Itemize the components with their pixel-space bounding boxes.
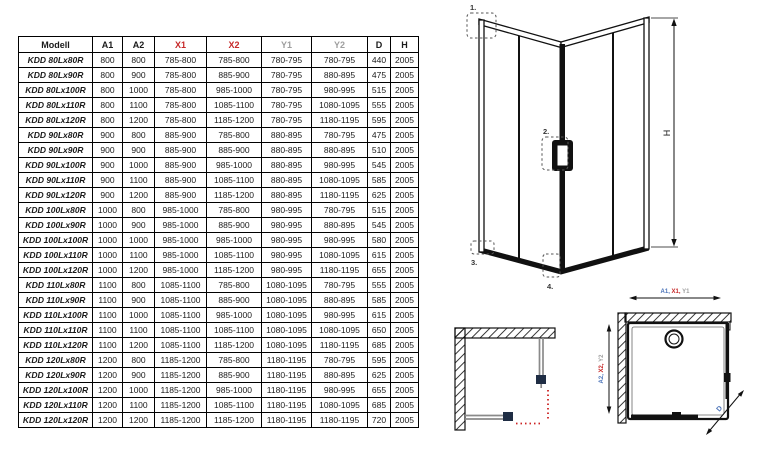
value-cell: 800 <box>123 278 155 293</box>
value-cell: 885-900 <box>155 188 207 203</box>
value-cell: 800 <box>93 113 123 128</box>
value-cell: 1000 <box>123 83 155 98</box>
value-cell: 720 <box>368 413 391 428</box>
model-cell: KDD 120Lx120R <box>19 413 93 428</box>
value-cell: 1200 <box>123 188 155 203</box>
value-cell: 885-900 <box>155 173 207 188</box>
model-cell: KDD 120Lx80R <box>19 353 93 368</box>
value-cell: 780-795 <box>262 113 312 128</box>
value-cell: 900 <box>123 68 155 83</box>
value-cell: 1000 <box>123 158 155 173</box>
value-cell: 1080-1095 <box>262 323 312 338</box>
table-row: KDD 90Lx110R9001100885-9001085-1100880-8… <box>19 173 419 188</box>
value-cell: 800 <box>123 53 155 68</box>
value-cell: 1200 <box>93 398 123 413</box>
value-cell: 780-795 <box>312 128 368 143</box>
model-cell: KDD 90Lx90R <box>19 143 93 158</box>
value-cell: 1085-1100 <box>155 338 207 353</box>
value-cell: 980-995 <box>262 218 312 233</box>
table-row: KDD 100Lx80R1000800985-1000785-800980-99… <box>19 203 419 218</box>
handle-bottom-door <box>503 412 513 421</box>
value-cell: 1200 <box>93 413 123 428</box>
value-cell: 1100 <box>123 173 155 188</box>
value-cell: 780-795 <box>262 53 312 68</box>
value-cell: 880-895 <box>262 188 312 203</box>
value-cell: 1080-1095 <box>312 248 368 263</box>
tray-plan-diagram: A1, X1, Y1 A2, X2, Y2 D <box>598 283 764 451</box>
value-cell: 900 <box>123 293 155 308</box>
value-cell: 980-995 <box>312 233 368 248</box>
value-cell: 2005 <box>391 383 419 398</box>
value-cell: 800 <box>93 53 123 68</box>
model-cell: KDD 110Lx110R <box>19 323 93 338</box>
value-cell: 780-795 <box>262 98 312 113</box>
value-cell: 1085-1100 <box>207 98 262 113</box>
value-cell: 1185-1200 <box>207 413 262 428</box>
value-cell: 685 <box>368 398 391 413</box>
value-cell: 880-895 <box>262 143 312 158</box>
value-cell: 800 <box>93 98 123 113</box>
value-cell: 1100 <box>123 98 155 113</box>
value-cell: 2005 <box>391 293 419 308</box>
value-cell: 985-1000 <box>207 308 262 323</box>
value-cell: 780-795 <box>262 83 312 98</box>
wall-top <box>625 313 731 322</box>
column-header-a2: A2 <box>123 37 155 53</box>
model-cell: KDD 120Lx90R <box>19 368 93 383</box>
value-cell: 1080-1095 <box>312 98 368 113</box>
value-cell: 985-1000 <box>155 218 207 233</box>
value-cell: 1080-1095 <box>262 278 312 293</box>
table-row: KDD 100Lx90R1000900985-1000885-900980-99… <box>19 218 419 233</box>
value-cell: 650 <box>368 323 391 338</box>
value-cell: 980-995 <box>262 203 312 218</box>
value-cell: 1085-1100 <box>207 173 262 188</box>
value-cell: 1200 <box>93 353 123 368</box>
value-cell: 625 <box>368 188 391 203</box>
value-cell: 800 <box>123 128 155 143</box>
table-row: KDD 120Lx100R120010001185-1200985-100011… <box>19 383 419 398</box>
value-cell: 985-1000 <box>155 233 207 248</box>
value-cell: 880-895 <box>312 143 368 158</box>
value-cell: 1185-1200 <box>155 368 207 383</box>
value-cell: 2005 <box>391 263 419 278</box>
table-row: KDD 110Lx80R11008001085-1100785-8001080-… <box>19 278 419 293</box>
value-cell: 780-795 <box>312 53 368 68</box>
value-cell: 880-895 <box>312 68 368 83</box>
value-cell: 880-895 <box>312 368 368 383</box>
value-cell: 585 <box>368 293 391 308</box>
value-cell: 985-1000 <box>207 83 262 98</box>
bottom-door-handle <box>672 412 681 420</box>
value-cell: 785-800 <box>155 113 207 128</box>
callout-3-label: 3. <box>471 258 477 267</box>
bottom-door-rail <box>631 415 698 419</box>
model-cell: KDD 110Lx80R <box>19 278 93 293</box>
table-row: KDD 120Lx80R12008001185-1200785-8001180-… <box>19 353 419 368</box>
door-opening-plan-diagram <box>440 318 575 451</box>
value-cell: 1085-1100 <box>155 323 207 338</box>
column-header-y2: Y2 <box>312 37 368 53</box>
value-cell: 785-800 <box>155 83 207 98</box>
value-cell: 1100 <box>123 323 155 338</box>
value-cell: 1180-1195 <box>262 353 312 368</box>
spec-table-body: KDD 80Lx80R800800785-800785-800780-79578… <box>19 53 419 428</box>
value-cell: 615 <box>368 308 391 323</box>
table-row: KDD 110Lx90R11009001085-1100885-9001080-… <box>19 293 419 308</box>
value-cell: 1080-1095 <box>262 338 312 353</box>
value-cell: 980-995 <box>312 383 368 398</box>
value-cell: 2005 <box>391 323 419 338</box>
model-cell: KDD 80Lx120R <box>19 113 93 128</box>
value-cell: 880-895 <box>262 158 312 173</box>
value-cell: 2005 <box>391 278 419 293</box>
value-cell: 885-900 <box>155 128 207 143</box>
value-cell: 885-900 <box>207 143 262 158</box>
value-cell: 985-1000 <box>155 203 207 218</box>
value-cell: 515 <box>368 203 391 218</box>
value-cell: 1100 <box>93 338 123 353</box>
value-cell: 800 <box>93 68 123 83</box>
value-cell: 980-995 <box>312 158 368 173</box>
table-row: KDD 90Lx100R9001000885-900985-1000880-89… <box>19 158 419 173</box>
value-cell: 1185-1200 <box>155 383 207 398</box>
value-cell: 800 <box>123 203 155 218</box>
value-cell: 885-900 <box>207 368 262 383</box>
value-cell: 1080-1095 <box>262 293 312 308</box>
value-cell: 785-800 <box>155 68 207 83</box>
table-row: KDD 80Lx100R8001000785-800985-1000780-79… <box>19 83 419 98</box>
value-cell: 985-1000 <box>207 233 262 248</box>
value-cell: 2005 <box>391 188 419 203</box>
value-cell: 900 <box>93 128 123 143</box>
value-cell: 1080-1095 <box>312 173 368 188</box>
model-cell: KDD 80Lx80R <box>19 53 93 68</box>
value-cell: 1180-1195 <box>262 398 312 413</box>
table-row: KDD 90Lx120R9001200885-9001185-1200880-8… <box>19 188 419 203</box>
value-cell: 1185-1200 <box>207 263 262 278</box>
value-cell: 440 <box>368 53 391 68</box>
value-cell: 1000 <box>93 263 123 278</box>
value-cell: 2005 <box>391 218 419 233</box>
value-cell: 1100 <box>123 248 155 263</box>
value-cell: 625 <box>368 368 391 383</box>
table-row: KDD 120Lx110R120011001185-12001085-11001… <box>19 398 419 413</box>
model-cell: KDD 80Lx110R <box>19 98 93 113</box>
spec-table: ModellA1A2X1X2Y1Y2DH KDD 80Lx80R80080078… <box>18 36 419 428</box>
value-cell: 785-800 <box>207 203 262 218</box>
table-row: KDD 80Lx80R800800785-800785-800780-79578… <box>19 53 419 68</box>
value-cell: 1185-1200 <box>207 113 262 128</box>
value-cell: 785-800 <box>207 278 262 293</box>
value-cell: 1000 <box>123 233 155 248</box>
value-cell: 900 <box>123 218 155 233</box>
value-cell: 580 <box>368 233 391 248</box>
value-cell: 980-995 <box>312 83 368 98</box>
value-cell: 885-900 <box>207 68 262 83</box>
value-cell: 1085-1100 <box>155 308 207 323</box>
value-cell: 1200 <box>123 263 155 278</box>
value-cell: 1100 <box>93 323 123 338</box>
iso-shower-diagram: H 1. 2. 3. 4. <box>440 0 764 320</box>
value-cell: 510 <box>368 143 391 158</box>
model-cell: KDD 80Lx90R <box>19 68 93 83</box>
value-cell: 2005 <box>391 98 419 113</box>
value-cell: 2005 <box>391 143 419 158</box>
value-cell: 880-895 <box>262 173 312 188</box>
value-cell: 900 <box>93 143 123 158</box>
value-cell: 1000 <box>123 383 155 398</box>
value-cell: 515 <box>368 83 391 98</box>
value-cell: 780-795 <box>312 353 368 368</box>
value-cell: 1085-1100 <box>207 323 262 338</box>
value-cell: 1185-1200 <box>155 398 207 413</box>
value-cell: 555 <box>368 278 391 293</box>
model-cell: KDD 120Lx110R <box>19 398 93 413</box>
value-cell: 785-800 <box>207 53 262 68</box>
value-cell: 1200 <box>123 413 155 428</box>
value-cell: 885-900 <box>207 218 262 233</box>
value-cell: 800 <box>93 83 123 98</box>
value-cell: 900 <box>93 188 123 203</box>
value-cell: 1180-1195 <box>312 413 368 428</box>
value-cell: 1100 <box>93 293 123 308</box>
value-cell: 615 <box>368 248 391 263</box>
value-cell: 785-800 <box>207 353 262 368</box>
value-cell: 2005 <box>391 203 419 218</box>
table-row: KDD 90Lx90R900900885-900885-900880-89588… <box>19 143 419 158</box>
value-cell: 1085-1100 <box>207 398 262 413</box>
value-cell: 880-895 <box>312 218 368 233</box>
value-cell: 2005 <box>391 128 419 143</box>
value-cell: 900 <box>93 158 123 173</box>
top-rail-right <box>561 17 649 48</box>
table-row: KDD 80Lx90R800900785-800885-900780-79588… <box>19 68 419 83</box>
value-cell: 1085-1100 <box>155 278 207 293</box>
right-post <box>644 18 649 249</box>
horizontal-dimension-label: A1, X1, Y1 <box>661 289 691 295</box>
value-cell: 1185-1200 <box>207 188 262 203</box>
value-cell: 985-1000 <box>207 383 262 398</box>
value-cell: 885-900 <box>207 293 262 308</box>
value-cell: 1180-1195 <box>312 338 368 353</box>
value-cell: 1185-1200 <box>155 413 207 428</box>
model-cell: KDD 90Lx80R <box>19 128 93 143</box>
value-cell: 475 <box>368 128 391 143</box>
value-cell: 555 <box>368 98 391 113</box>
model-cell: KDD 90Lx100R <box>19 158 93 173</box>
value-cell: 980-995 <box>262 233 312 248</box>
table-row: KDD 120Lx120R120012001185-12001185-12001… <box>19 413 419 428</box>
model-cell: KDD 110Lx100R <box>19 308 93 323</box>
value-cell: 980-995 <box>262 248 312 263</box>
value-cell: 985-1000 <box>155 248 207 263</box>
table-row: KDD 120Lx90R12009001185-1200885-9001180-… <box>19 368 419 383</box>
model-cell: KDD 110Lx90R <box>19 293 93 308</box>
value-cell: 2005 <box>391 53 419 68</box>
value-cell: 1180-1195 <box>262 368 312 383</box>
value-cell: 885-900 <box>155 158 207 173</box>
value-cell: 780-795 <box>312 203 368 218</box>
model-cell: KDD 100Lx90R <box>19 218 93 233</box>
value-cell: 900 <box>123 143 155 158</box>
callout-4-label: 4. <box>547 282 553 291</box>
callout-1-label: 1. <box>470 3 476 12</box>
value-cell: 1200 <box>123 338 155 353</box>
table-row: KDD 80Lx120R8001200785-8001185-1200780-7… <box>19 113 419 128</box>
value-cell: 585 <box>368 173 391 188</box>
table-row: KDD 110Lx100R110010001085-1100985-100010… <box>19 308 419 323</box>
value-cell: 1100 <box>93 308 123 323</box>
column-header-modell: Modell <box>19 37 93 53</box>
value-cell: 1200 <box>93 368 123 383</box>
value-cell: 785-800 <box>155 98 207 113</box>
table-row: KDD 90Lx80R900800885-900785-800880-89578… <box>19 128 419 143</box>
value-cell: 1000 <box>93 203 123 218</box>
right-door-handle <box>724 373 731 382</box>
value-cell: 475 <box>368 68 391 83</box>
model-cell: KDD 100Lx110R <box>19 248 93 263</box>
value-cell: 1185-1200 <box>207 338 262 353</box>
value-cell: 2005 <box>391 248 419 263</box>
table-row: KDD 110Lx120R110012001085-11001185-12001… <box>19 338 419 353</box>
value-cell: 1080-1095 <box>262 308 312 323</box>
value-cell: 985-1000 <box>155 263 207 278</box>
value-cell: 2005 <box>391 173 419 188</box>
value-cell: 780-795 <box>312 278 368 293</box>
value-cell: 685 <box>368 338 391 353</box>
wall-top <box>455 328 555 338</box>
table-row: KDD 80Lx110R8001100785-8001085-1100780-7… <box>19 98 419 113</box>
value-cell: 1180-1195 <box>312 188 368 203</box>
callout-2-label: 2. <box>543 127 549 136</box>
model-cell: KDD 120Lx100R <box>19 383 93 398</box>
wall-left <box>618 313 626 423</box>
value-cell: 2005 <box>391 158 419 173</box>
value-cell: 2005 <box>391 398 419 413</box>
table-row: KDD 100Lx110R10001100985-10001085-110098… <box>19 248 419 263</box>
value-cell: 2005 <box>391 353 419 368</box>
vertical-dimension-label: A2, X2, Y2 <box>599 354 605 384</box>
value-cell: 1000 <box>93 218 123 233</box>
bottom-rail-right <box>561 245 649 275</box>
left-post <box>479 20 484 252</box>
value-cell: 900 <box>93 173 123 188</box>
value-cell: 785-800 <box>155 53 207 68</box>
value-cell: 1200 <box>123 113 155 128</box>
model-cell: KDD 110Lx120R <box>19 338 93 353</box>
value-cell: 2005 <box>391 113 419 128</box>
value-cell: 980-995 <box>262 263 312 278</box>
value-cell: 1080-1095 <box>312 398 368 413</box>
handle-right-door <box>536 375 546 384</box>
value-cell: 785-800 <box>207 128 262 143</box>
value-cell: 900 <box>123 368 155 383</box>
column-header-y1: Y1 <box>262 37 312 53</box>
column-header-d: D <box>368 37 391 53</box>
value-cell: 1200 <box>93 383 123 398</box>
value-cell: 1180-1195 <box>262 383 312 398</box>
value-cell: 655 <box>368 383 391 398</box>
height-dimension-label: H <box>662 130 672 137</box>
value-cell: 1000 <box>93 248 123 263</box>
value-cell: 1100 <box>123 398 155 413</box>
value-cell: 880-895 <box>312 293 368 308</box>
value-cell: 595 <box>368 353 391 368</box>
value-cell: 985-1000 <box>207 158 262 173</box>
value-cell: 1085-1100 <box>155 293 207 308</box>
value-cell: 1185-1200 <box>155 353 207 368</box>
value-cell: 885-900 <box>155 143 207 158</box>
model-cell: KDD 100Lx100R <box>19 233 93 248</box>
value-cell: 2005 <box>391 413 419 428</box>
column-header-x2: X2 <box>207 37 262 53</box>
value-cell: 1000 <box>123 308 155 323</box>
value-cell: 800 <box>123 353 155 368</box>
column-header-x1: X1 <box>155 37 207 53</box>
right-door-rail <box>726 323 730 399</box>
model-cell: KDD 100Lx80R <box>19 203 93 218</box>
value-cell: 2005 <box>391 83 419 98</box>
value-cell: 545 <box>368 158 391 173</box>
model-cell: KDD 90Lx110R <box>19 173 93 188</box>
value-cell: 1000 <box>93 233 123 248</box>
table-row: KDD 100Lx120R10001200985-10001185-120098… <box>19 263 419 278</box>
value-cell: 595 <box>368 113 391 128</box>
value-cell: 2005 <box>391 68 419 83</box>
drain-circle <box>666 331 683 348</box>
value-cell: 655 <box>368 263 391 278</box>
value-cell: 2005 <box>391 233 419 248</box>
column-header-h: H <box>391 37 419 53</box>
model-cell: KDD 80Lx100R <box>19 83 93 98</box>
value-cell: 1100 <box>93 278 123 293</box>
model-cell: KDD 90Lx120R <box>19 188 93 203</box>
wall-left <box>455 328 465 430</box>
value-cell: 2005 <box>391 368 419 383</box>
value-cell: 2005 <box>391 308 419 323</box>
value-cell: 780-795 <box>262 68 312 83</box>
value-cell: 1180-1195 <box>312 113 368 128</box>
value-cell: 2005 <box>391 338 419 353</box>
table-row: KDD 100Lx100R10001000985-1000985-1000980… <box>19 233 419 248</box>
value-cell: 1085-1100 <box>207 248 262 263</box>
value-cell: 1180-1195 <box>312 263 368 278</box>
value-cell: 980-995 <box>312 308 368 323</box>
value-cell: 1080-1095 <box>312 323 368 338</box>
table-row: KDD 110Lx110R110011001085-11001085-11001… <box>19 323 419 338</box>
value-cell: 880-895 <box>262 128 312 143</box>
model-cell: KDD 100Lx120R <box>19 263 93 278</box>
column-header-a1: A1 <box>93 37 123 53</box>
header-row: ModellA1A2X1X2Y1Y2DH <box>19 37 419 53</box>
value-cell: 545 <box>368 218 391 233</box>
value-cell: 1180-1195 <box>262 413 312 428</box>
